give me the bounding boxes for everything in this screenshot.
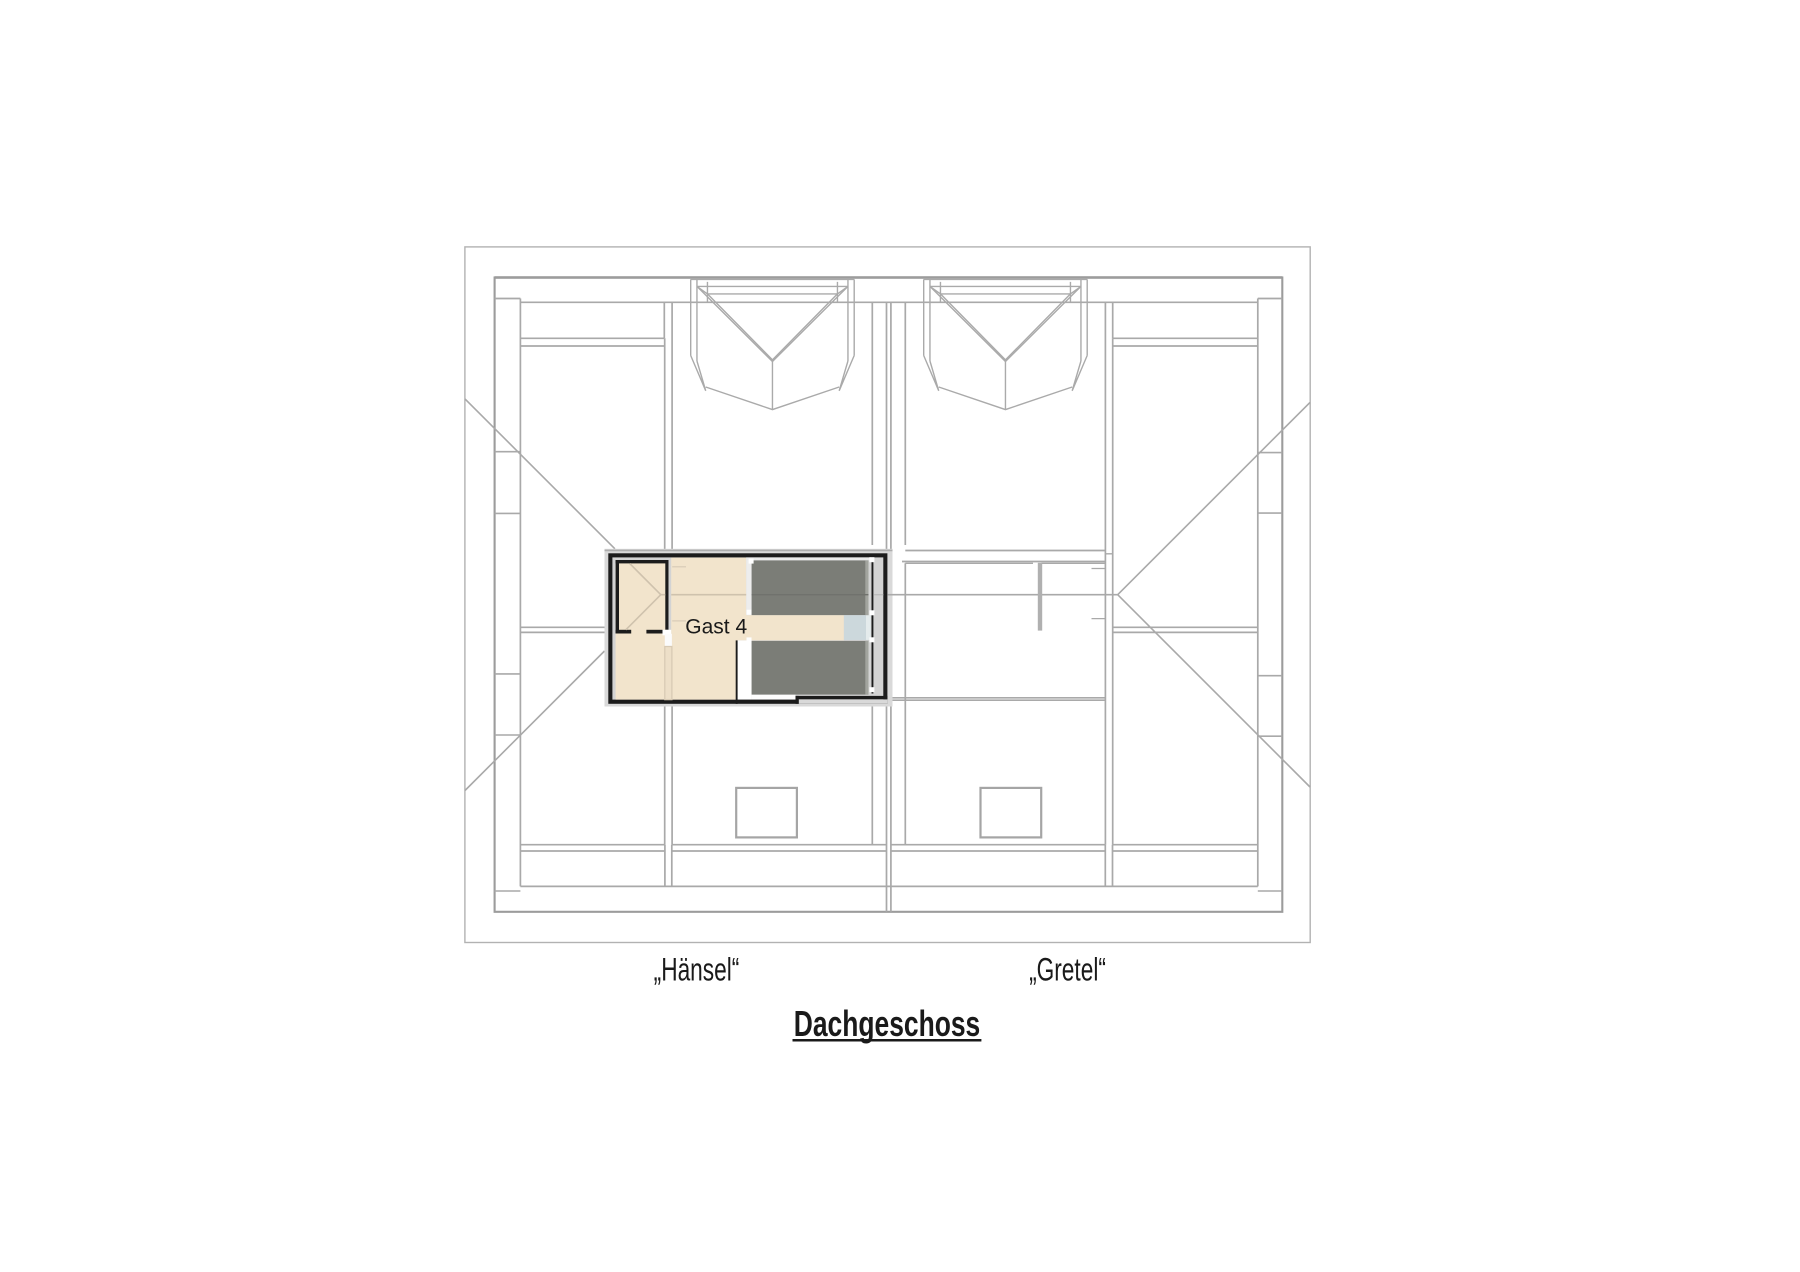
svg-text:„Hänsel“: „Hänsel“ [654, 951, 740, 987]
svg-text:Gast 4: Gast 4 [685, 615, 747, 638]
svg-text:„Gretel“: „Gretel“ [1029, 951, 1106, 987]
svg-text:Dachgeschoss: Dachgeschoss [794, 1003, 981, 1044]
